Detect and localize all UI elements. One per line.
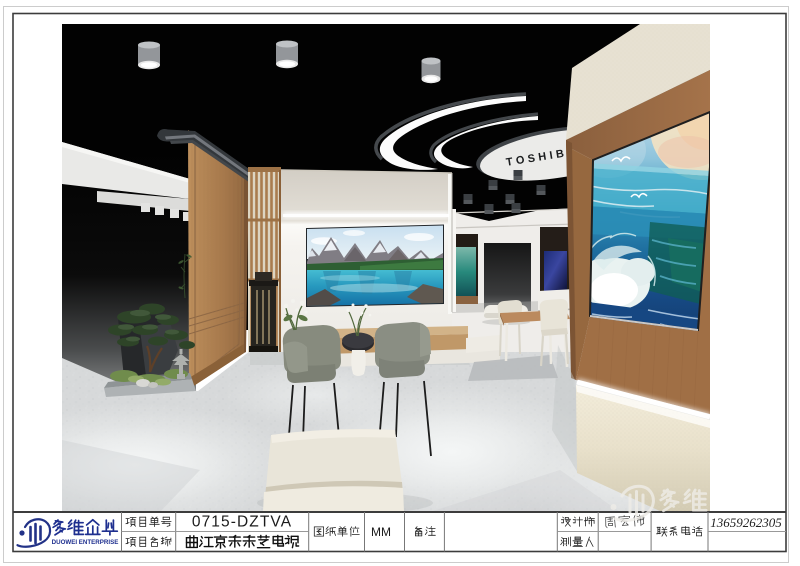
svg-text:MM: MM xyxy=(371,525,391,539)
svg-text:DUOWEI ENTERPRISE: DUOWEI ENTERPRISE xyxy=(52,539,119,546)
svg-text:0715-DZTVA: 0715-DZTVA xyxy=(192,514,292,531)
svg-text:13659262305: 13659262305 xyxy=(710,515,782,530)
